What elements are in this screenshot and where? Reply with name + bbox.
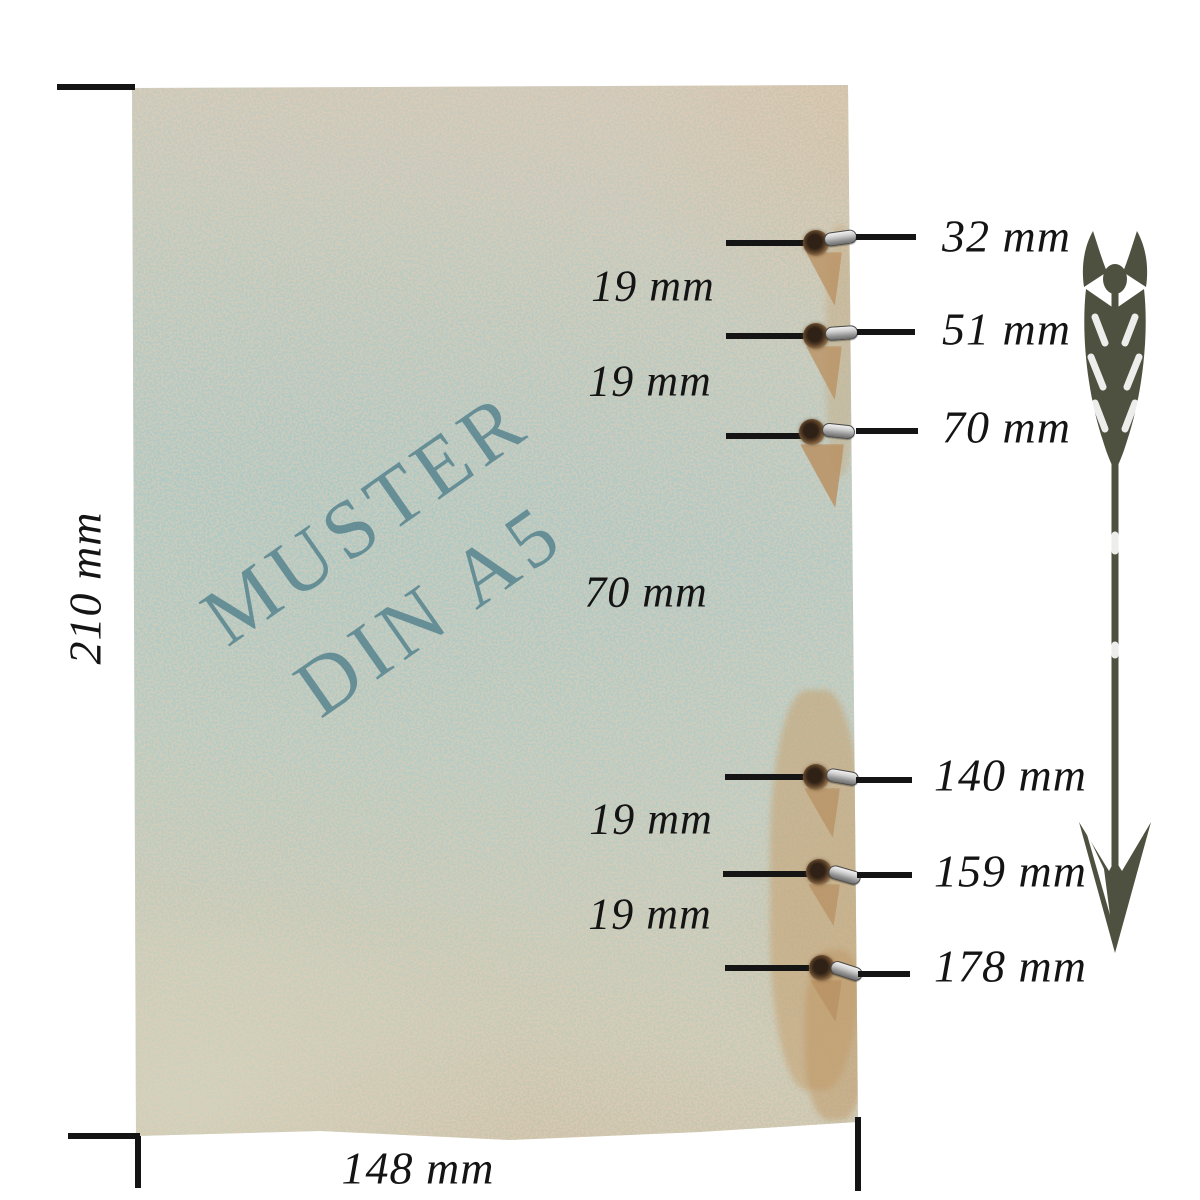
width-dim-right-tick — [855, 1117, 861, 1191]
hole-3 — [799, 419, 825, 445]
eyelet-ring-1 — [823, 229, 858, 247]
gap-label-2: 19 mm — [588, 355, 712, 406]
dim-line-hole1-right — [856, 234, 916, 240]
dim-line-hole5-left — [723, 871, 807, 877]
height-dim-top-tick — [57, 84, 135, 90]
dim-line-hole6-right — [858, 971, 910, 977]
hole-distance-label-1: 32 mm — [942, 209, 1071, 262]
dim-line-hole4-right — [856, 777, 912, 783]
arrow-illustration — [1055, 225, 1185, 965]
dim-line-hole1-left — [726, 240, 810, 246]
hole-distance-label-2: 51 mm — [942, 302, 1071, 355]
dim-line-hole5-right — [857, 872, 912, 878]
eyelet-ring-2 — [825, 325, 859, 341]
gap-label-3: 70 mm — [584, 566, 708, 617]
dim-line-hole3-left — [726, 433, 806, 439]
hole-distance-label-3: 70 mm — [942, 400, 1071, 453]
dim-line-hole6-left — [725, 965, 809, 971]
width-dim-label: 148 mm — [342, 1142, 495, 1195]
dim-line-hole2-right — [857, 329, 915, 335]
arrow-fletching-icon — [1083, 231, 1147, 471]
diagram-canvas: MUSTER DIN A5 32 mm 19 mm 51 mm 19 mm 70… — [0, 0, 1200, 1200]
dim-line-hole4-left — [725, 774, 805, 780]
hole-4 — [803, 764, 829, 790]
dim-line-hole2-left — [726, 333, 808, 339]
height-dim-bottom-tick — [68, 1133, 140, 1139]
width-dim-left-tick — [135, 1136, 141, 1188]
height-dim-label: 210 mm — [59, 512, 112, 665]
gap-label-5: 19 mm — [588, 888, 712, 939]
gap-label-4: 19 mm — [589, 793, 713, 844]
dim-line-hole3-right — [856, 428, 918, 434]
gap-label-1: 19 mm — [591, 260, 715, 311]
